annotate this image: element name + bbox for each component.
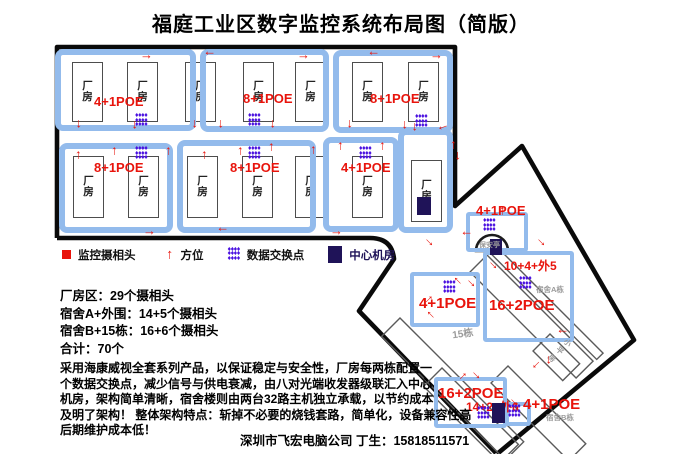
building-label: 厂 房 <box>252 176 263 198</box>
direction-arrow-icon: → <box>192 118 202 131</box>
security-booth-label: 保安亭 <box>479 240 500 250</box>
direction-arrow-icon: → <box>265 141 275 154</box>
description-line: 采用海康威视全套系列产品，以保证稳定与安全性，厂房每两栋配置一 <box>60 361 471 377</box>
direction-arrow-icon: → <box>140 50 153 60</box>
direction-arrow-icon: → <box>455 150 465 163</box>
legend-item: 监控摄相头 <box>62 247 136 263</box>
direction-arrow-icon: → <box>108 145 118 158</box>
data-switch-icon: ♦♦♦♦ ♦♦♦♦ ♦♦♦♦ <box>519 277 531 291</box>
direction-arrow-icon: → <box>132 119 142 132</box>
factory-building: 厂 房 <box>295 156 326 218</box>
direction-arrow-icon: → <box>496 205 506 218</box>
description-text: 采用海康威视全套系列产品，以保证稳定与安全性，厂房每两栋配置一个数据交换点，减少… <box>60 361 471 439</box>
direction-arrow-icon: → <box>460 230 473 240</box>
data-switch-icon: ♦♦♦♦ ♦♦♦♦ ♦♦♦♦ <box>483 219 495 233</box>
stats-line: 合计：70个 <box>60 341 218 359</box>
description-line: 个数据交换点，减少信号与供电衰减，由八对光端收发器级联汇入中心 <box>60 377 471 393</box>
stats-line: 宿舍A+外围：14+5个摄相头 <box>60 306 218 324</box>
data-switch-icon: ♦♦♦♦ ♦♦♦♦ ♦♦♦♦ <box>248 114 260 128</box>
legend-label: 方位 <box>181 247 204 263</box>
poe-count-label: 8+1POE <box>370 91 420 106</box>
description-line: 机房，架构简单清晰，宿舍楼则由两台32路主机独立承载，以节约成本 <box>60 392 471 408</box>
area-name-label: 宿舍B栋 <box>546 412 574 423</box>
data-switch-icon: ♦♦♦♦ ♦♦♦♦ ♦♦♦♦ <box>228 248 240 262</box>
direction-arrow-icon: → <box>76 118 86 131</box>
direction-arrow-icon: → <box>216 226 229 236</box>
direction-arrow-icon: → <box>546 354 556 367</box>
direction-arrow-icon: → <box>297 50 310 60</box>
area-name-label: 宿舍A栋 <box>536 284 564 295</box>
factory-building: 厂 房 <box>72 62 103 122</box>
camera-icon <box>62 250 71 259</box>
poe-count-label: 8+1POE <box>94 160 144 175</box>
direction-arrow-icon: → <box>436 122 452 136</box>
legend-item: →方位 <box>160 247 204 263</box>
direction-arrow-icon: → <box>307 144 317 157</box>
layout-diagram: 福庭工业区数字监控系统布局图（简版） 厂 房厂 房厂 房厂 房厂 房厂 房厂 房… <box>0 0 682 454</box>
data-switch-icon: ♦♦♦♦ ♦♦♦♦ ♦♦♦♦ <box>248 147 260 161</box>
company-contact: 深圳市飞宏电脑公司 丁生：15818511571 <box>240 430 469 449</box>
direction-arrow-icon: → <box>367 50 380 60</box>
legend-item: 中心机房 <box>328 246 395 263</box>
poe-count-label: 16+2POE <box>489 297 554 314</box>
building-label: 厂 房 <box>362 176 373 198</box>
building-label: 厂 房 <box>305 81 316 103</box>
direction-arrow-icon: → <box>203 50 216 60</box>
factory-building: 厂 房 <box>187 156 218 218</box>
direction-arrow-icon: → <box>162 145 172 158</box>
direction-arrow-icon: → <box>218 118 228 131</box>
poe-count-label: 8+1POE <box>230 160 280 175</box>
data-switch-icon: ♦♦♦♦ ♦♦♦♦ ♦♦♦♦ <box>135 147 147 161</box>
data-switch-icon: ♦♦♦♦ ♦♦♦♦ ♦♦♦♦ <box>477 407 489 421</box>
data-switch-icon: ♦♦♦♦ ♦♦♦♦ ♦♦♦♦ <box>359 147 371 161</box>
direction-arrow-icon: → <box>270 118 280 131</box>
server-room-icon <box>492 403 505 423</box>
factory-building: 厂 房 <box>185 62 216 122</box>
direction-arrow-icon: → <box>72 149 82 162</box>
poe-count-label: 4+1POE <box>94 94 144 109</box>
area-name-label: 15栋 <box>451 324 474 342</box>
server-room-icon <box>328 246 342 263</box>
direction-arrow-icon: → <box>412 121 422 134</box>
poe-count-label: 4+1POE <box>341 160 391 175</box>
direction-arrow-icon: → <box>234 145 244 158</box>
building-label: 厂 房 <box>138 176 149 198</box>
building-label: 厂 房 <box>82 81 93 103</box>
server-room-icon <box>417 197 431 215</box>
legend-item: ♦♦♦♦ ♦♦♦♦ ♦♦♦♦数据交换点 <box>228 247 305 263</box>
building-label: 厂 房 <box>83 176 94 198</box>
factory-building: 厂 房 <box>295 62 326 122</box>
stats-line: 宿舍B+15栋：16+6个摄相头 <box>60 323 218 341</box>
direction-arrow-icon: → <box>330 226 343 236</box>
legend-label: 数据交换点 <box>247 247 305 263</box>
building-label: 厂 房 <box>305 176 316 198</box>
building-label: 厂 房 <box>197 176 208 198</box>
direction-arrow-icon: → <box>143 226 156 236</box>
poe-count-label: 10+4+外5 <box>504 257 557 274</box>
poe-count-label: 8+1POE <box>243 91 293 106</box>
description-line: 及明了架构！ 整体架构特点：斩掉不必要的烧钱套路，简单化，设备兼容性高 <box>60 408 471 424</box>
legend-label: 监控摄相头 <box>78 247 136 263</box>
poe-count-label: 4+1POE <box>523 396 580 413</box>
direction-arrow-icon: → <box>347 118 357 131</box>
direction-arrow-icon: → <box>334 140 344 153</box>
direction-arrow-icon: → <box>376 140 386 153</box>
direction-arrow-icon: → <box>430 50 443 60</box>
legend-label: 中心机房 <box>349 247 395 263</box>
direction-arrow-icon: → <box>159 248 175 262</box>
stats-line: 厂房区：29个摄相头 <box>60 288 218 306</box>
camera-count-stats: 厂房区：29个摄相头宿舍A+外围：14+5个摄相头宿舍B+15栋：16+6个摄相… <box>60 288 218 358</box>
legend: 监控摄相头→方位♦♦♦♦ ♦♦♦♦ ♦♦♦♦数据交换点中心机房 <box>62 246 395 263</box>
building-label: 厂 房 <box>195 81 206 103</box>
direction-arrow-icon: → <box>198 149 208 162</box>
direction-arrow-icon: → <box>556 328 569 338</box>
